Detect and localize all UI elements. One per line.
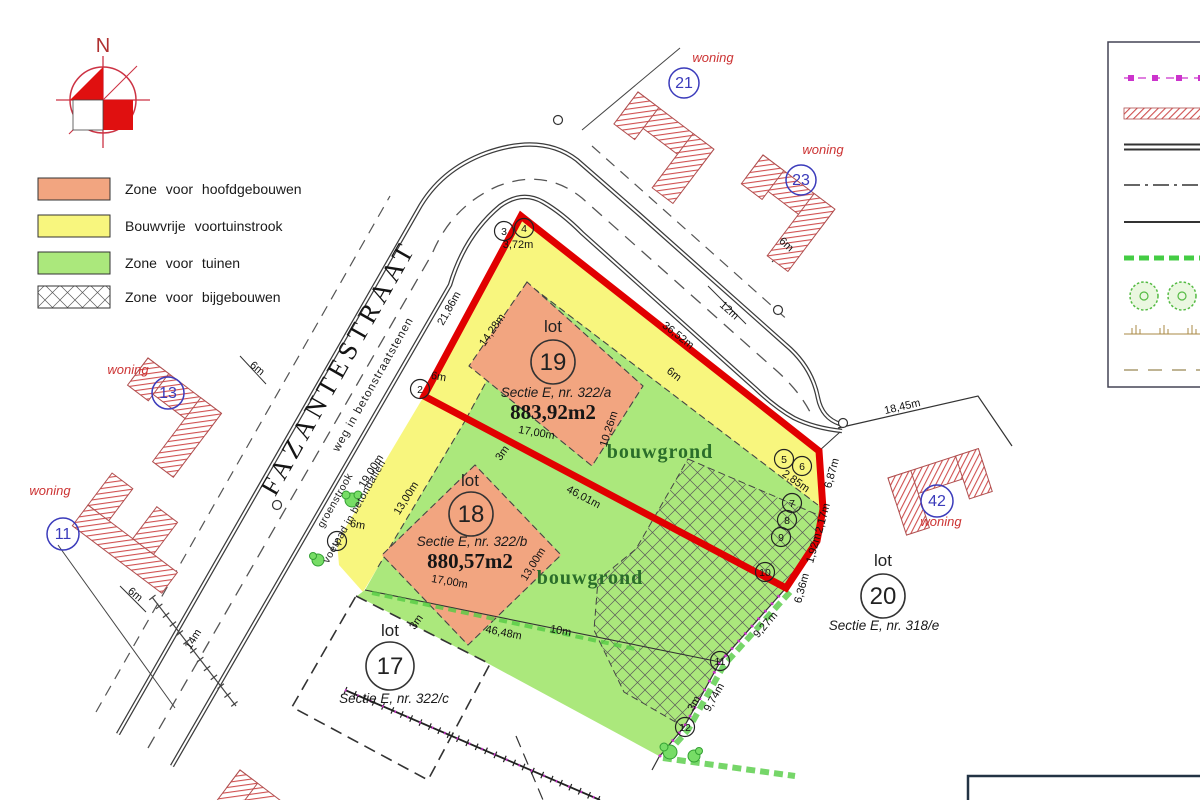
legend-label-tuinen: Zone voor tuinen: [125, 255, 240, 271]
legend-label-voortuinstrook: Bouwvrije voortuinstrook: [125, 218, 284, 234]
lot20-labels: lot 20 Sectie E, nr. 318/e: [829, 551, 940, 633]
legend-swatch-hoofdgebouwen: [38, 178, 110, 200]
lot18-status: bouwgrond: [537, 567, 643, 589]
legend-swatch-tuinen: [38, 252, 110, 274]
lot18-area: 880,57m2: [427, 549, 513, 573]
house23-number: 23: [792, 172, 810, 189]
north-compass: N: [56, 35, 150, 148]
house-21: [597, 92, 714, 203]
lot18-section: Sectie E, nr. 322/b: [417, 534, 528, 549]
house11-number: 11: [55, 526, 72, 543]
svg-text:4: 4: [521, 223, 527, 235]
legend-building-hatch: [1124, 108, 1200, 119]
dim-6-87: 6,87m: [822, 457, 842, 490]
manhole-icon: [273, 501, 282, 510]
svg-text:3: 3: [501, 226, 507, 238]
lot17-word: lot: [381, 621, 399, 640]
lot19-word: lot: [544, 317, 562, 336]
house42-number: 42: [928, 493, 946, 510]
lot19-number: 19: [540, 349, 567, 376]
svg-text:1: 1: [334, 536, 340, 548]
house-11: [72, 473, 201, 593]
house11-label: woning: [29, 483, 71, 498]
zone-legend: Zone voor hoofdgebouwen Bouwvrije voortu…: [38, 178, 302, 308]
house-23: [716, 155, 835, 271]
manhole-icon: [839, 419, 848, 428]
legend-label-hoofdgebouwen: Zone voor hoofdgebouwen: [125, 181, 302, 197]
svg-text:7: 7: [789, 498, 795, 510]
lot17-section: Sectie E, nr. 322/c: [339, 691, 449, 706]
house23-label: woning: [802, 142, 844, 157]
manhole-icon: [554, 116, 563, 125]
svg-text:11: 11: [715, 656, 726, 668]
house21-label: woning: [692, 50, 734, 65]
svg-text:8: 8: [784, 515, 790, 527]
lot18-number: 18: [458, 501, 485, 528]
lot18-word: lot: [461, 471, 479, 490]
dim-6m: 6m: [247, 359, 266, 378]
cadastral-plan: FAZANTESTRAAT weg in betonstraatstenen g…: [0, 0, 1200, 800]
lot17-number: 17: [377, 653, 404, 680]
lot20-section: Sectie E, nr. 318/e: [829, 618, 940, 633]
house42-label: woning: [920, 514, 962, 529]
parcel-boundary-42: [838, 396, 1012, 446]
manhole-icon: [774, 306, 783, 315]
svg-text:12: 12: [679, 722, 691, 734]
dim-21-86: 21,86m: [435, 290, 463, 328]
dim-6m: 6m: [125, 585, 144, 604]
title-block-corner: [968, 776, 1200, 800]
svg-text:6: 6: [799, 461, 805, 473]
svg-text:9: 9: [778, 532, 784, 544]
linestyle-legend-box: [1108, 42, 1200, 387]
svg-text:10: 10: [759, 567, 771, 579]
dim-18-45: 18,45m: [883, 397, 921, 417]
legend-swatch-voortuinstrook: [38, 215, 110, 237]
house13-number: 13: [159, 385, 177, 402]
legend-label-bijgebouwen: Zone voor bijgebouwen: [125, 289, 281, 305]
lot20-number: 20: [870, 583, 897, 610]
bush-icon: [688, 748, 703, 763]
dim-3-72: 3,72m: [503, 239, 534, 251]
dim-14m: 14m: [183, 627, 205, 652]
lot20-word: lot: [874, 551, 892, 570]
house-partial: [207, 770, 296, 800]
house21-number: 21: [675, 75, 693, 92]
house13-label: woning: [107, 362, 149, 377]
legend-swatch-bijgebouwen: [38, 286, 110, 308]
green-strip: [663, 758, 795, 776]
svg-text:2: 2: [417, 384, 423, 396]
bush-icon: [660, 743, 677, 759]
plan-drawing: FAZANTESTRAAT weg in betonstraatstenen g…: [0, 0, 1200, 800]
north-label: N: [96, 35, 110, 57]
lot19-status: bouwgrond: [607, 441, 713, 463]
lot19-area: 883,92m2: [510, 400, 596, 424]
svg-text:5: 5: [781, 454, 787, 466]
lot19-section: Sectie E, nr. 322/a: [501, 385, 612, 400]
